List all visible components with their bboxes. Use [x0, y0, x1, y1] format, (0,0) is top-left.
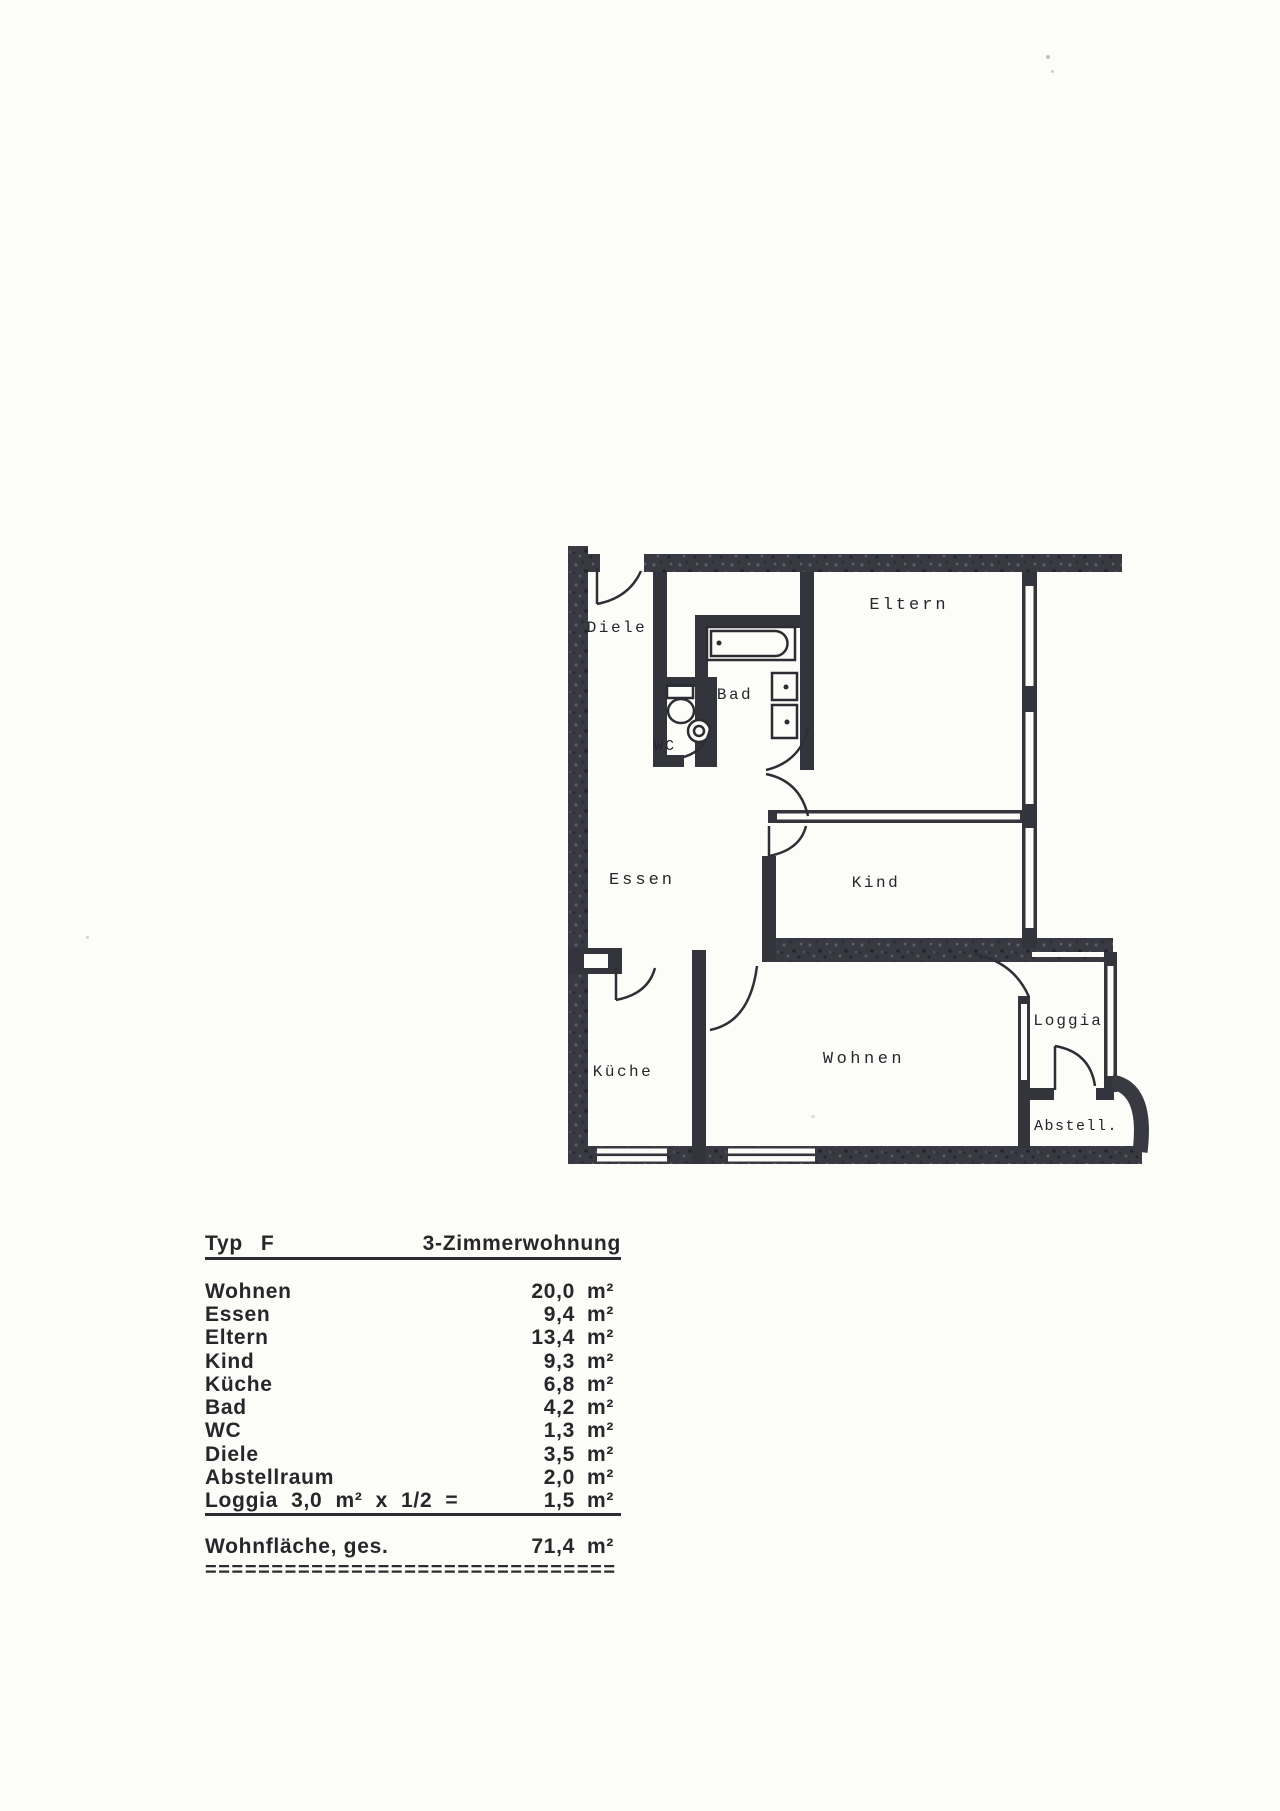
row-unit: m² [587, 1280, 621, 1304]
type-label: Typ [205, 1232, 243, 1256]
room-label-loggia: Loggia [1033, 1012, 1103, 1030]
area-table: Typ F 3-Zimmerwohnung Wohnen 20,0m² Esse… [205, 1232, 621, 1583]
wall-abstell-top-left [1018, 1088, 1054, 1100]
room-label-diele: Diele [587, 619, 648, 637]
table-row: Diele 3,5m² [205, 1443, 621, 1466]
row-value: 3,5 [519, 1443, 575, 1467]
row-unit: m² [587, 1419, 621, 1443]
loggia-lintel [1032, 952, 1104, 957]
floor-plan: Diele Bad WC Eltern Essen Kind Küche Woh… [0, 0, 1280, 1811]
row-label: Kind [205, 1350, 254, 1374]
table-rows: Wohnen 20,0m² Essen 9,4m² Eltern 13,4m² … [205, 1280, 621, 1516]
row-label: WC [205, 1419, 241, 1443]
room-label-essen: Essen [609, 871, 675, 890]
bathtub-icon [707, 627, 795, 660]
eltern-door [766, 774, 808, 816]
entry-opening [600, 553, 644, 573]
wall-kind-left [762, 856, 776, 960]
table-row: Küche 6,8m² [205, 1373, 621, 1396]
row-label: Essen [205, 1303, 270, 1327]
washbasin-icon [772, 673, 797, 700]
abstell-door [1055, 1046, 1095, 1090]
table-row: Abstellraum 2,0m² [205, 1466, 621, 1489]
wall-abstell-rounded-corner [1112, 1082, 1141, 1152]
scanned-page: Diele Bad WC Eltern Essen Kind Küche Woh… [0, 0, 1280, 1811]
row-unit: m² [587, 1466, 621, 1490]
room-label-abstell: Abstell. [1034, 1118, 1118, 1135]
wall-bad-eltern [800, 572, 814, 770]
wall-kueche-right [692, 950, 706, 1164]
row-label: Eltern [205, 1326, 269, 1350]
room-label-wc: WC [654, 738, 676, 755]
row-value: 9,3 [519, 1350, 575, 1374]
table-row-loggia: Loggia 3,0 m² x 1/2 = 1,5m² [205, 1490, 621, 1513]
table-row: Bad 4,2m² [205, 1396, 621, 1419]
row-value: 2,0 [519, 1466, 575, 1490]
room-label-eltern: Eltern [869, 596, 948, 615]
table-row: WC 1,3m² [205, 1420, 621, 1443]
wall-kind-bottom [762, 938, 1113, 962]
row-unit: m² [587, 1326, 621, 1350]
row-label: Bad [205, 1396, 247, 1420]
row-value: 1,3 [519, 1419, 575, 1443]
room-label-kind: Kind [852, 874, 900, 892]
total-label: Wohnfläche, ges. [205, 1535, 389, 1559]
table-row: Essen 9,4m² [205, 1303, 621, 1326]
wohnen-window [728, 1149, 815, 1162]
room-label-bad: Bad [717, 686, 753, 704]
table-total-row: Wohnfläche, ges. 71,4m² [205, 1535, 621, 1558]
row-label: Loggia 3,0 m² x 1/2 = [205, 1489, 458, 1513]
scan-speck [811, 1115, 815, 1118]
wall-top [568, 554, 1122, 572]
row-label: Abstellraum [205, 1466, 334, 1490]
kueche-window [597, 1149, 667, 1162]
row-unit: m² [587, 1443, 621, 1467]
entry-door [597, 568, 641, 604]
table-header: Typ F 3-Zimmerwohnung [205, 1232, 621, 1260]
apartment-type: 3-Zimmerwohnung [423, 1232, 621, 1256]
wall-diele-bad [653, 572, 667, 684]
row-unit: m² [587, 1489, 621, 1513]
row-value: 4,2 [519, 1396, 575, 1420]
table-row: Wohnen 20,0m² [205, 1280, 621, 1303]
total-unit: m² [587, 1535, 621, 1559]
table-row: Kind 9,3m² [205, 1350, 621, 1373]
kind-door [769, 826, 806, 856]
row-value: 20,0 [519, 1280, 575, 1304]
room-label-kueche: Küche [593, 1063, 654, 1081]
scan-speck [1051, 70, 1054, 73]
row-unit: m² [587, 1373, 621, 1397]
row-unit: m² [587, 1350, 621, 1374]
row-label: Wohnen [205, 1280, 292, 1304]
row-label: Küche [205, 1373, 273, 1397]
table-row: Eltern 13,4m² [205, 1327, 621, 1350]
washbasin-icon [772, 705, 797, 738]
room-label-wohnen: Wohnen [823, 1050, 905, 1069]
row-value: 9,4 [519, 1303, 575, 1327]
row-value: 6,8 [519, 1373, 575, 1397]
toilet-icon [667, 685, 694, 723]
wall-left [568, 546, 588, 1164]
wohnen-door [710, 966, 757, 1030]
row-label: Diele [205, 1443, 259, 1467]
scan-speck [86, 936, 89, 939]
row-unit: m² [587, 1396, 621, 1420]
type-value: F [261, 1232, 275, 1256]
table-separator: =============================== [205, 1559, 621, 1583]
row-value: 13,4 [519, 1326, 575, 1350]
row-value: 1,5 [519, 1489, 575, 1513]
wall-wc-bottom [653, 755, 684, 767]
scan-speck [1046, 55, 1050, 59]
fixtures [667, 627, 797, 742]
row-unit: m² [587, 1303, 621, 1327]
total-value: 71,4 [519, 1535, 575, 1559]
